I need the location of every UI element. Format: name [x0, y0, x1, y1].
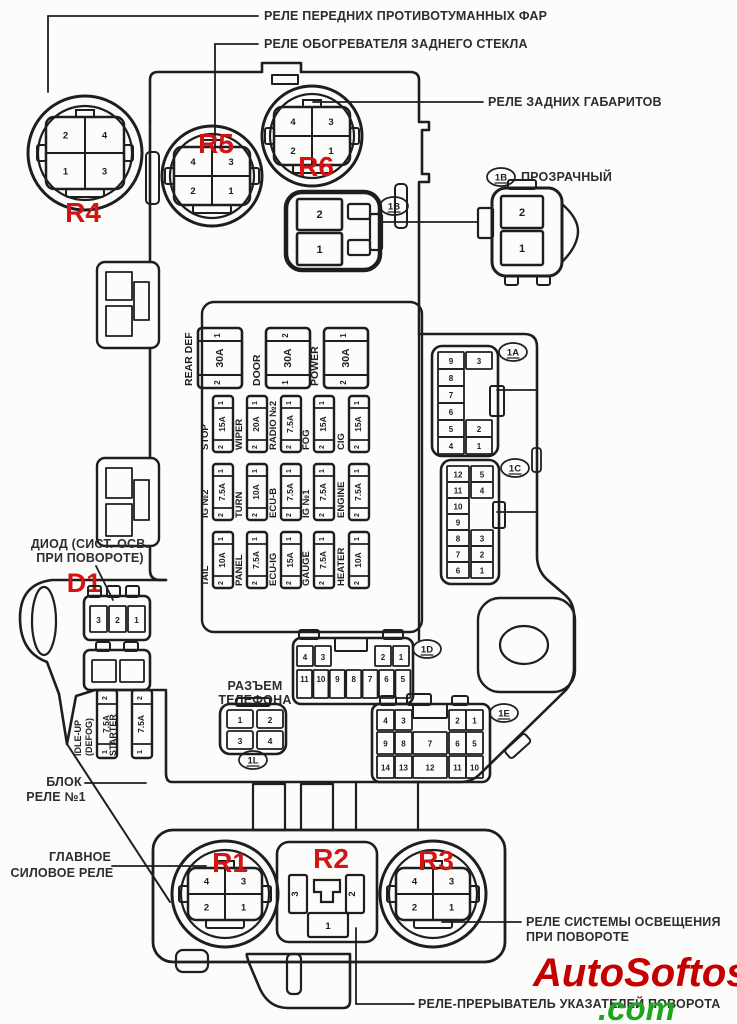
- left-mount-1-tab: [134, 282, 149, 320]
- svg-text:4: 4: [383, 717, 388, 726]
- svg-text:1: 1: [449, 903, 455, 914]
- svg-text:4: 4: [290, 117, 296, 128]
- right-bracket-hole: [500, 626, 548, 664]
- callout-front-fog-relay: РЕЛЕ ПЕРЕДНИХ ПРОТИВОТУМАННЫХ ФАР: [264, 9, 547, 23]
- badge-1B: 1B: [487, 168, 515, 186]
- connector-1D: 4321111098765: [293, 630, 413, 704]
- svg-text:2: 2: [190, 186, 195, 197]
- svg-text:POWER: POWER: [309, 346, 321, 386]
- svg-text:DOOR: DOOR: [251, 354, 263, 386]
- svg-text:3: 3: [449, 877, 454, 888]
- svg-text:IDLE-UP: IDLE-UP: [73, 720, 83, 756]
- svg-text:GAUGE: GAUGE: [301, 551, 312, 586]
- svg-text:WIPER: WIPER: [234, 419, 245, 450]
- fuse-IG-№1: 17.5A2IG №1: [301, 464, 334, 520]
- callout-rear-lights-relay: РЕЛЕ ЗАДНИХ ГАБАРИТОВ: [488, 95, 662, 109]
- svg-text:11: 11: [453, 764, 462, 773]
- svg-text:1: 1: [480, 567, 485, 576]
- svg-text:2: 2: [281, 333, 290, 338]
- svg-text:30A: 30A: [214, 348, 226, 368]
- svg-text:2: 2: [480, 551, 485, 560]
- svg-text:10A: 10A: [353, 552, 363, 568]
- svg-text:2: 2: [455, 717, 460, 726]
- callout-transparent: ПРОЗРАЧНЫЙ: [521, 169, 612, 184]
- fuse-TURN: 110A2TURN: [234, 464, 267, 520]
- svg-text:2: 2: [354, 513, 361, 517]
- neck-tab: [301, 784, 333, 830]
- svg-text:1E: 1E: [498, 709, 510, 720]
- fuse-FOG: 115A2FOG: [301, 396, 334, 452]
- left-edge-slot: [146, 152, 159, 204]
- svg-text:7.5A: 7.5A: [285, 415, 295, 433]
- top-slot: [272, 75, 298, 84]
- svg-text:10: 10: [470, 764, 479, 773]
- svg-text:30A: 30A: [340, 348, 352, 368]
- callout-diode-line1: ДИОД (СИСТ. ОСВ.: [31, 537, 149, 551]
- fuse-HEATER: 110A2HEATER: [336, 532, 369, 588]
- svg-text:7: 7: [449, 391, 454, 400]
- fuse-IG-№2: 17.5A2IG №2: [200, 464, 233, 520]
- svg-text:3: 3: [238, 736, 243, 746]
- svg-text:2: 2: [316, 209, 322, 221]
- svg-text:ECU-IG: ECU-IG: [268, 553, 279, 586]
- svg-text:2: 2: [354, 445, 361, 449]
- left-mount-1-cell: [106, 272, 132, 300]
- connector-1A: 987654321: [432, 346, 504, 456]
- fuse-DOOR: 230A1DOOR: [251, 328, 310, 388]
- svg-text:R5: R5: [198, 128, 234, 159]
- svg-text:10A: 10A: [251, 484, 261, 500]
- svg-text:AutoSoftos: AutoSoftos: [532, 951, 737, 995]
- svg-text:2: 2: [213, 380, 222, 385]
- svg-text:1: 1: [238, 715, 243, 725]
- svg-text:R3: R3: [418, 845, 454, 876]
- svg-text:3: 3: [102, 167, 107, 178]
- svg-text:9: 9: [335, 675, 340, 684]
- svg-text:7.5A: 7.5A: [285, 483, 295, 501]
- svg-text:2: 2: [339, 380, 348, 385]
- relay-R3: 4321R3: [380, 841, 486, 947]
- svg-text:7.5A: 7.5A: [318, 551, 328, 569]
- callout-cornering-line1: РЕЛЕ СИСТЕМЫ ОСВЕЩЕНИЯ: [526, 915, 721, 929]
- svg-text:7: 7: [368, 675, 373, 684]
- svg-text:2: 2: [286, 445, 293, 449]
- svg-text:4: 4: [412, 877, 418, 888]
- fuse-RADIO-№2: 17.5A2RADIO №2: [268, 396, 301, 452]
- callout-block-line1: БЛОК: [46, 775, 82, 789]
- svg-text:1B: 1B: [388, 202, 400, 213]
- badge-1E: 1E: [490, 704, 518, 722]
- svg-text:1: 1: [281, 380, 290, 385]
- callout-block-line2: РЕЛЕ №1: [26, 790, 86, 804]
- fuse-ECU-B: 17.5A2ECU-B: [268, 464, 301, 520]
- svg-text:R2: R2: [313, 843, 349, 874]
- fuse-STARTER: 27.5A1STARTER: [108, 690, 152, 758]
- svg-text:6: 6: [456, 567, 461, 576]
- svg-text:CIG: CIG: [336, 433, 347, 450]
- left-arm-hole: [32, 587, 56, 655]
- fuse-ECU-IG: 115A2ECU-IG: [268, 532, 301, 588]
- fuse-box-diagram: РЕЛЕ ПЕРЕДНИХ ПРОТИВОТУМАННЫХ ФАРРЕЛЕ ОБ…: [0, 0, 737, 1024]
- svg-text:TURN: TURN: [234, 491, 245, 518]
- badge-1D: 1D: [413, 640, 441, 658]
- svg-text:2: 2: [204, 903, 209, 914]
- svg-text:1: 1: [319, 537, 326, 541]
- connector-1B-right: 21: [478, 180, 578, 285]
- svg-text:ECU-B: ECU-B: [268, 488, 279, 518]
- svg-text:2: 2: [102, 696, 109, 700]
- svg-text:14: 14: [381, 764, 390, 773]
- svg-text:1C: 1C: [509, 464, 521, 475]
- svg-text:2: 2: [319, 581, 326, 585]
- svg-text:2: 2: [137, 696, 144, 700]
- svg-text:20A: 20A: [251, 416, 261, 432]
- svg-text:ENGINE: ENGINE: [336, 482, 347, 518]
- svg-text:STOP: STOP: [200, 424, 211, 450]
- svg-text:11: 11: [454, 487, 463, 496]
- svg-text:7: 7: [428, 740, 433, 749]
- svg-text:FOG: FOG: [301, 429, 312, 450]
- svg-text:1: 1: [472, 717, 477, 726]
- svg-text:15A: 15A: [217, 416, 227, 432]
- diode-marker: D1: [67, 568, 102, 598]
- fuse-STOP: 115A2STOP: [200, 396, 233, 452]
- svg-text:HEATER: HEATER: [336, 548, 347, 586]
- svg-text:1: 1: [213, 333, 222, 338]
- svg-text:STARTER: STARTER: [108, 714, 118, 756]
- fuse-POWER: 130A2POWER: [309, 328, 368, 388]
- svg-text:1: 1: [218, 401, 225, 405]
- svg-text:R1: R1: [212, 847, 248, 878]
- svg-text:1: 1: [339, 333, 348, 338]
- svg-text:1L: 1L: [247, 756, 258, 767]
- left-mount-2-cell: [106, 504, 132, 536]
- fuse-REAR-DEF: 130A2REAR DEF: [183, 328, 242, 388]
- svg-text:1: 1: [354, 401, 361, 405]
- svg-text:7.5A: 7.5A: [251, 551, 261, 569]
- svg-text:15A: 15A: [285, 552, 295, 568]
- svg-text:1: 1: [286, 537, 293, 541]
- svg-text:5: 5: [472, 740, 477, 749]
- svg-text:2: 2: [63, 131, 68, 142]
- svg-text:1: 1: [241, 903, 247, 914]
- svg-text:3: 3: [96, 615, 101, 625]
- svg-text:RADIO №2: RADIO №2: [268, 401, 279, 450]
- svg-text:1: 1: [218, 537, 225, 541]
- svg-text:1: 1: [325, 921, 331, 932]
- svg-text:1D: 1D: [421, 645, 433, 656]
- svg-text:IG №1: IG №1: [301, 489, 312, 518]
- svg-text:R6: R6: [298, 151, 334, 182]
- svg-text:1: 1: [316, 244, 322, 256]
- svg-text:30A: 30A: [282, 348, 294, 368]
- svg-text:12: 12: [426, 764, 435, 773]
- svg-text:2: 2: [252, 513, 259, 517]
- fuse-GAUGE: 17.5A2GAUGE: [301, 532, 334, 588]
- svg-text:2: 2: [115, 615, 120, 625]
- fuse-CIG: 115A2CIG: [336, 396, 369, 452]
- svg-text:5: 5: [480, 471, 485, 480]
- svg-text:TAIL: TAIL: [200, 565, 211, 586]
- callout-phone-line1: РАЗЪЕМ: [228, 679, 283, 693]
- connector-1C: 121110987654321: [441, 460, 505, 584]
- svg-text:1: 1: [218, 469, 225, 473]
- neck-lines: [356, 782, 418, 830]
- svg-text:3: 3: [241, 877, 246, 888]
- svg-text:2: 2: [319, 445, 326, 449]
- svg-text:(DEFOG): (DEFOG): [84, 718, 94, 756]
- svg-text:4: 4: [102, 131, 108, 142]
- svg-text:7.5A: 7.5A: [318, 483, 328, 501]
- svg-text:1: 1: [319, 469, 326, 473]
- svg-text:10: 10: [316, 675, 325, 684]
- svg-text:2: 2: [477, 425, 482, 434]
- svg-text:1: 1: [252, 469, 259, 473]
- svg-text:IG №2: IG №2: [200, 489, 211, 518]
- svg-text:1: 1: [286, 469, 293, 473]
- svg-text:9: 9: [456, 519, 461, 528]
- svg-text:1: 1: [354, 469, 361, 473]
- svg-text:12: 12: [454, 471, 463, 480]
- svg-text:9: 9: [383, 740, 388, 749]
- svg-text:1B: 1B: [495, 173, 507, 184]
- svg-text:4: 4: [204, 877, 210, 888]
- right-bracket: [478, 598, 575, 692]
- svg-text:2: 2: [412, 903, 417, 914]
- connector-1E: 4321987651413121110: [372, 694, 490, 782]
- svg-text:1: 1: [354, 537, 361, 541]
- svg-text:1: 1: [519, 243, 525, 255]
- relay-R5: 4321R5: [162, 126, 262, 226]
- svg-text:6: 6: [384, 675, 389, 684]
- svg-text:2: 2: [252, 581, 259, 585]
- svg-text:D1: D1: [67, 568, 102, 598]
- svg-text:4: 4: [268, 736, 273, 746]
- svg-text:2: 2: [268, 715, 273, 725]
- svg-text:7.5A: 7.5A: [353, 483, 363, 501]
- connector-1B-left: 21: [286, 192, 382, 270]
- svg-text:15A: 15A: [318, 416, 328, 432]
- svg-text:3: 3: [480, 535, 485, 544]
- left-mount-2-tab: [134, 480, 149, 520]
- svg-text:2: 2: [286, 513, 293, 517]
- svg-text:1: 1: [252, 537, 259, 541]
- svg-text:1A: 1A: [507, 348, 519, 359]
- svg-text:3: 3: [477, 357, 482, 366]
- callout-rear-defog-relay: РЕЛЕ ОБОГРЕВАТЕЛЯ ЗАДНЕГО СТЕКЛА: [264, 37, 528, 51]
- svg-text:6: 6: [449, 408, 454, 417]
- svg-text:1: 1: [228, 186, 234, 197]
- callout-diode-line2: ПРИ ПОВОРОТЕ): [36, 551, 144, 565]
- svg-text:10: 10: [454, 503, 463, 512]
- neck-tab: [253, 784, 285, 830]
- relay-R1: 4321R1: [172, 841, 278, 947]
- svg-text:15A: 15A: [353, 416, 363, 432]
- svg-text:3: 3: [328, 117, 333, 128]
- svg-text:3: 3: [290, 891, 301, 896]
- svg-text:4: 4: [190, 157, 196, 168]
- fuse-PANEL: 17.5A2PANEL: [234, 532, 267, 588]
- badge-1A: 1A: [499, 343, 527, 361]
- svg-text:2: 2: [290, 146, 295, 157]
- svg-text:3: 3: [401, 717, 406, 726]
- svg-text:4: 4: [480, 487, 485, 496]
- svg-text:8: 8: [351, 675, 356, 684]
- svg-text:2: 2: [381, 653, 386, 662]
- svg-text:R4: R4: [65, 197, 101, 228]
- svg-text:1: 1: [63, 167, 69, 178]
- svg-text:4: 4: [303, 653, 308, 662]
- svg-text:.com: .com: [598, 990, 675, 1024]
- callout-labels: РЕЛЕ ПЕРЕДНИХ ПРОТИВОТУМАННЫХ ФАРРЕЛЕ ОБ…: [11, 9, 721, 1011]
- svg-text:9: 9: [449, 357, 454, 366]
- connector-below-D1: [84, 642, 150, 690]
- svg-text:2: 2: [218, 445, 225, 449]
- bottom-bracket-slot: [287, 954, 301, 994]
- svg-text:8: 8: [449, 374, 454, 383]
- svg-text:1: 1: [134, 615, 139, 625]
- svg-text:2: 2: [347, 891, 358, 896]
- svg-text:1: 1: [137, 750, 144, 754]
- svg-text:13: 13: [399, 764, 408, 773]
- svg-text:2: 2: [218, 581, 225, 585]
- badge-1C: 1C: [501, 459, 529, 477]
- callout-main-relay-line1: ГЛАВНОЕ: [49, 850, 111, 864]
- relay-R2: 321R2: [277, 842, 377, 942]
- svg-text:11: 11: [300, 675, 309, 684]
- fuse-ENGINE: 17.5A2ENGINE: [336, 464, 369, 520]
- callout-cornering-line2: ПРИ ПОВОРОТЕ: [526, 930, 629, 944]
- svg-text:2: 2: [218, 513, 225, 517]
- svg-text:5: 5: [401, 675, 406, 684]
- svg-text:1: 1: [399, 653, 404, 662]
- svg-text:3: 3: [321, 653, 326, 662]
- svg-text:7.5A: 7.5A: [217, 483, 227, 501]
- left-mount-2-cell: [106, 468, 132, 498]
- svg-text:2: 2: [252, 445, 259, 449]
- svg-text:7: 7: [456, 551, 461, 560]
- svg-text:1: 1: [319, 401, 326, 405]
- svg-text:2: 2: [354, 581, 361, 585]
- svg-text:4: 4: [449, 442, 454, 451]
- relay-R4: 2413R4: [28, 96, 142, 228]
- left-mount-1-cell: [106, 306, 132, 336]
- fuse-TAIL: 110A2TAIL: [200, 532, 233, 588]
- svg-text:7.5A: 7.5A: [136, 715, 146, 733]
- svg-text:1: 1: [252, 401, 259, 405]
- callout-main-relay-line2: СИЛОВОЕ РЕЛЕ: [11, 866, 114, 880]
- svg-text:2: 2: [286, 581, 293, 585]
- svg-text:5: 5: [449, 425, 454, 434]
- svg-text:2: 2: [519, 207, 525, 219]
- svg-text:PANEL: PANEL: [234, 554, 245, 586]
- svg-text:10A: 10A: [217, 552, 227, 568]
- fuse-WIPER: 120A2WIPER: [234, 396, 267, 452]
- generated-content: РЕЛЕ ПЕРЕДНИХ ПРОТИВОТУМАННЫХ ФАРРЕЛЕ ОБ…: [11, 9, 737, 1024]
- svg-text:1: 1: [477, 442, 482, 451]
- svg-text:REAR DEF: REAR DEF: [183, 332, 195, 386]
- svg-text:2: 2: [319, 513, 326, 517]
- svg-text:1: 1: [286, 401, 293, 405]
- svg-text:8: 8: [401, 740, 406, 749]
- svg-text:8: 8: [456, 535, 461, 544]
- fuse-box-diagram-page: РЕЛЕ ПЕРЕДНИХ ПРОТИВОТУМАННЫХ ФАРРЕЛЕ ОБ…: [0, 0, 737, 1024]
- callout-flasher: РЕЛЕ-ПРЕРЫВАТЕЛЬ УКАЗАТЕЛЕЙ ПОВОРОТА: [418, 996, 721, 1011]
- svg-text:6: 6: [455, 740, 460, 749]
- relay-R6: 4321R6: [262, 86, 362, 186]
- watermark: AutoSoftos.com: [532, 951, 737, 1024]
